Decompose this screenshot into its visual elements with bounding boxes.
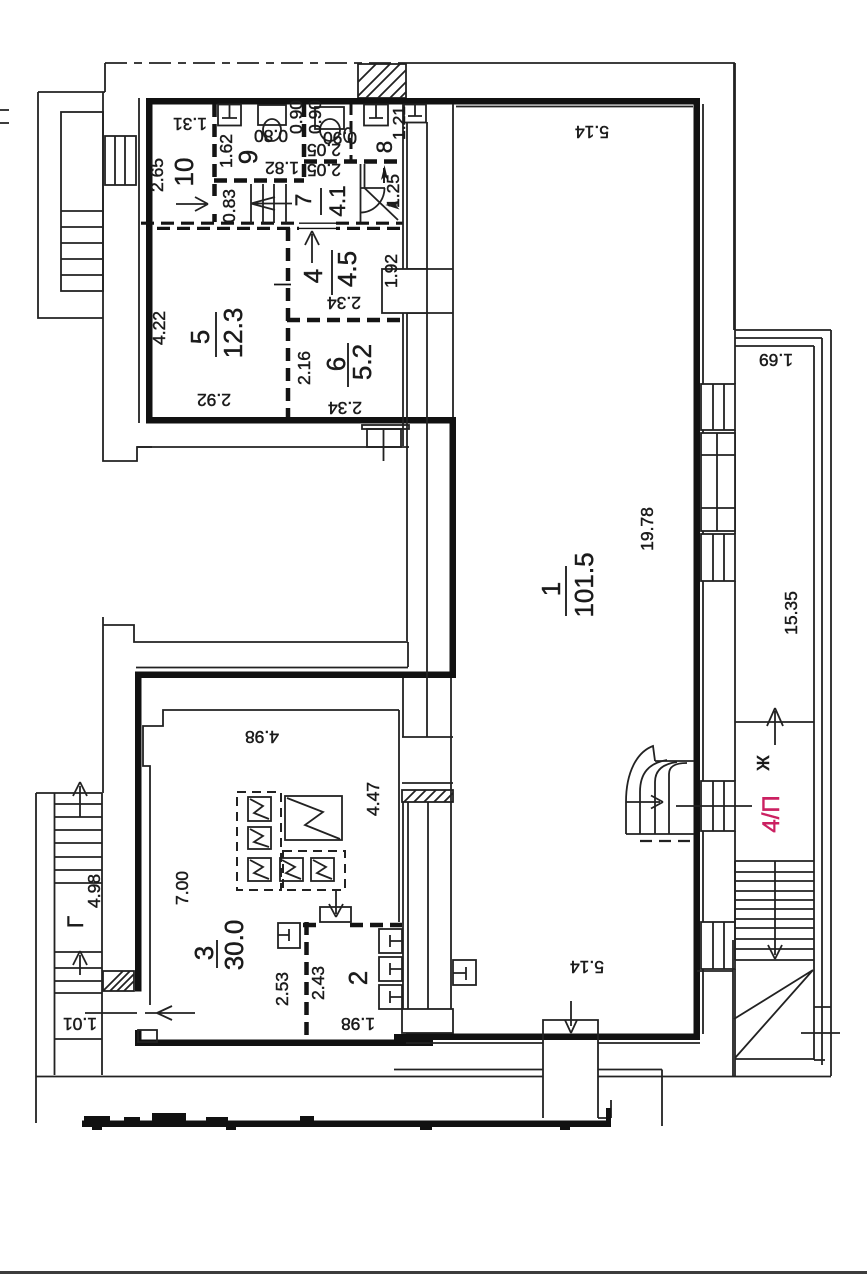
svg-text:4.98: 4.98 [245,727,279,747]
svg-text:1: 1 [536,582,566,596]
svg-text:5.14: 5.14 [575,122,609,142]
svg-text:4.5: 4.5 [332,251,362,287]
svg-text:1.82: 1.82 [265,158,299,178]
svg-text:0.90: 0.90 [286,100,306,134]
svg-text:1.62: 1.62 [216,134,236,168]
svg-text:2.92: 2.92 [197,390,231,410]
svg-text:15.35: 15.35 [781,591,801,635]
svg-text:1.92: 1.92 [381,254,401,288]
svg-text:7.00: 7.00 [172,871,192,905]
svg-text:2.65: 2.65 [147,158,167,192]
svg-text:1.01: 1.01 [63,1014,97,1034]
svg-text:8: 8 [372,141,397,154]
svg-text:2.43: 2.43 [308,966,328,1000]
svg-text:19.78: 19.78 [637,507,657,551]
svg-text:0.90: 0.90 [305,100,325,134]
svg-text:2: 2 [343,971,373,985]
svg-text:1.31: 1.31 [173,114,207,134]
svg-text:5.14: 5.14 [570,957,604,977]
svg-text:2.05: 2.05 [307,160,341,180]
svg-text:5.2: 5.2 [347,344,377,380]
svg-text:2.16: 2.16 [294,351,314,385]
svg-text:ж: ж [749,755,774,770]
svg-text:0.80: 0.80 [254,126,288,146]
svg-text:101.5: 101.5 [569,552,599,617]
svg-text:9: 9 [233,150,263,164]
svg-text:4.1: 4.1 [325,185,350,216]
svg-text:2.34: 2.34 [327,293,361,313]
svg-text:4.47: 4.47 [363,782,383,816]
svg-text:10: 10 [169,158,199,187]
svg-text:7: 7 [291,194,316,207]
svg-text:1.25: 1.25 [383,174,403,208]
svg-text:5: 5 [185,330,215,344]
svg-text:4.98: 4.98 [84,874,104,908]
svg-text:30.0: 30.0 [219,920,249,971]
svg-text:1.69: 1.69 [759,350,793,370]
svg-text:Г: Г [63,916,88,928]
svg-text:0.83: 0.83 [219,189,239,223]
svg-text:1.21: 1.21 [389,106,409,140]
svg-text:4/П: 4/П [758,795,785,832]
svg-text:2.34: 2.34 [328,398,362,418]
svg-text:4: 4 [298,269,328,283]
svg-text:2.05: 2.05 [307,140,341,160]
svg-text:1.98: 1.98 [341,1014,375,1034]
svg-text:12.3: 12.3 [218,308,248,359]
svg-text:4.22: 4.22 [149,311,169,345]
svg-text:3: 3 [189,946,219,960]
svg-text:2.53: 2.53 [272,972,292,1006]
